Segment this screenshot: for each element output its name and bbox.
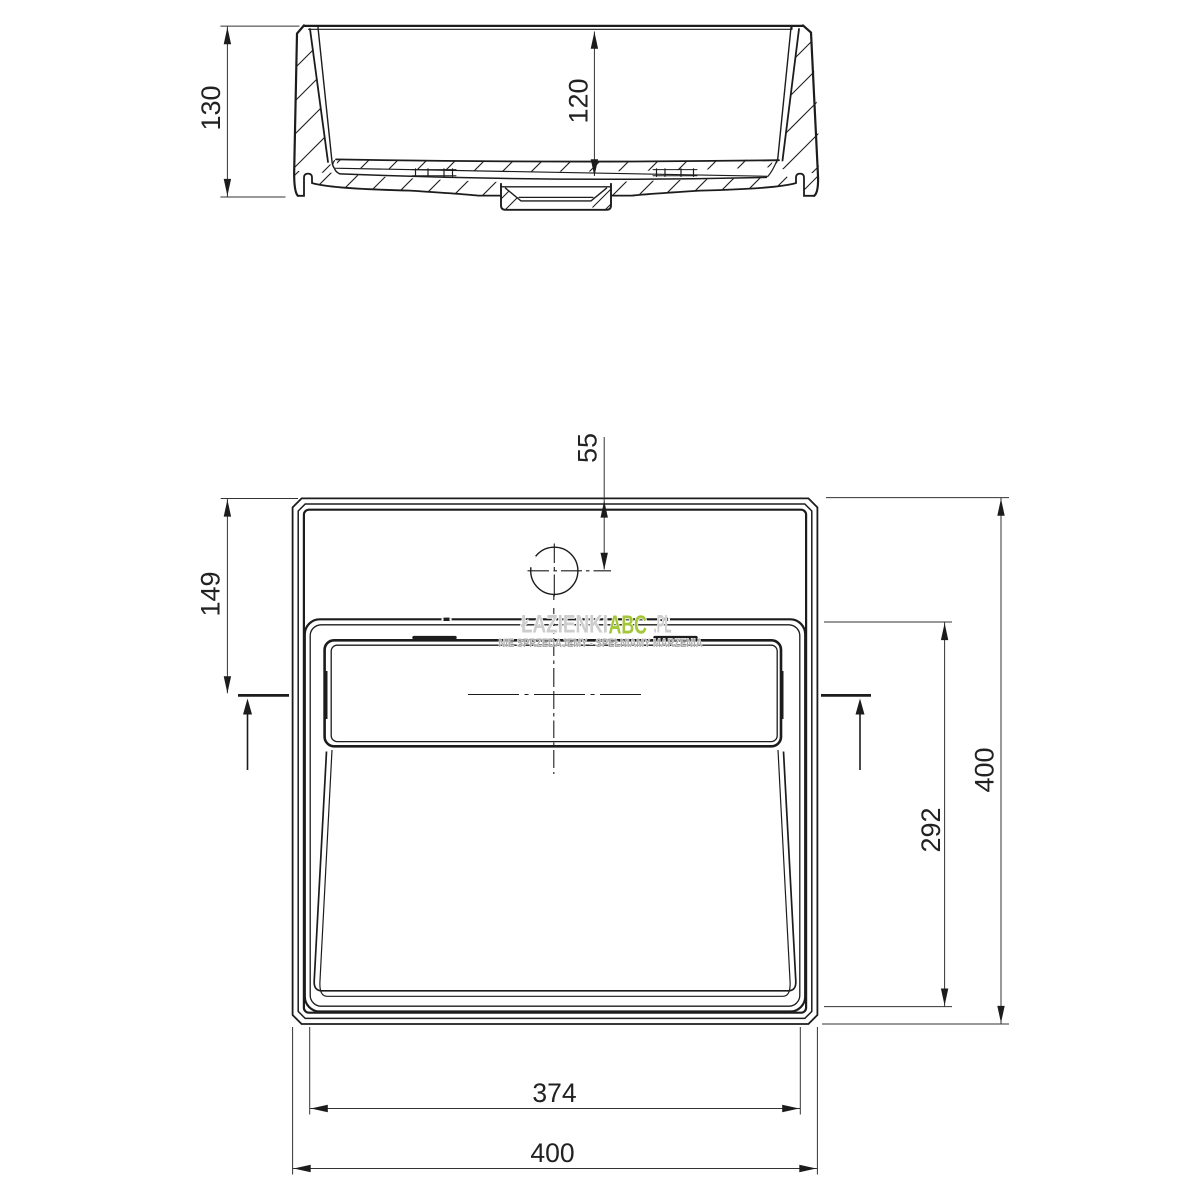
- svg-text:400: 400: [530, 1138, 574, 1168]
- svg-text:55: 55: [573, 433, 603, 463]
- svg-text:374: 374: [532, 1078, 576, 1108]
- svg-text:120: 120: [564, 78, 594, 123]
- svg-text:149: 149: [196, 571, 226, 616]
- svg-text:NIE SPRZEDAJEMY - SPEŁNIAMY MA: NIE SPRZEDAJEMY - SPEŁNIAMY MARZENIA: [499, 636, 703, 650]
- svg-text:ŁAZIENKI: ŁAZIENKI: [521, 611, 608, 639]
- svg-text:.PL: .PL: [654, 611, 672, 639]
- svg-text:400: 400: [970, 747, 1000, 792]
- svg-text:130: 130: [196, 85, 226, 130]
- svg-text:292: 292: [916, 807, 946, 852]
